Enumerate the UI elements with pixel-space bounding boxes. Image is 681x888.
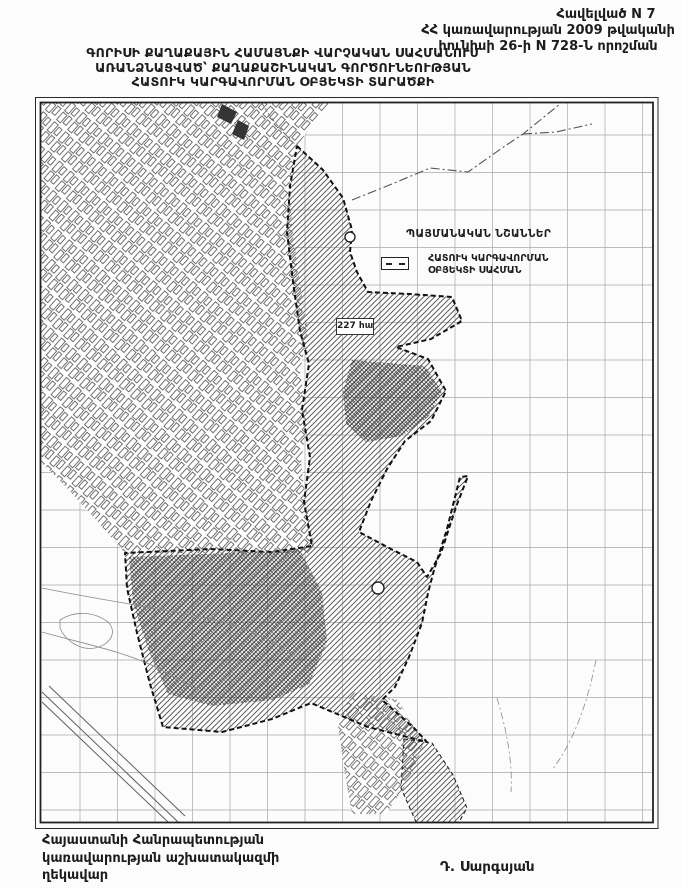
- boundary-marker-circle: [345, 232, 355, 242]
- signatory-line1: Հայաստանի Հանրապետության: [42, 832, 279, 850]
- signatory-line2: կառավարության աշխատակազմի: [42, 850, 279, 868]
- boundary-marker-circle: [372, 582, 384, 594]
- dashed-boundary-symbol: [381, 257, 409, 270]
- territory-area-label: 227 հա: [336, 318, 374, 335]
- signatory-block: Հայաստանի Հանրապետության կառավարության ա…: [42, 832, 279, 885]
- legend-entry-line2: ՕԲՅԵԿՏԻ ՍԱՀՄԱՆ: [428, 265, 548, 277]
- appendix-number: Հավելված N 7: [456, 7, 681, 23]
- title-line2: ԱՌԱՆՁՆԱՑՎԱԾ՝ ՔԱՂԱՔԱՇԻՆԱԿԱՆ ԳՈՐԾՈՒՆԵՈՒԹՅԱ…: [73, 61, 493, 76]
- page-title: ԳՈՐԻՍԻ ՔԱՂԱՔԱՅԻՆ ՀԱՄԱՅՆՔԻ ՎԱՐՉԱԿԱՆ ՍԱՀՄԱ…: [73, 46, 493, 90]
- legend-entry: ՀԱՏՈՒԿ ԿԱՐԳԱՎՈՐՄԱՆ ՕԲՅԵԿՏԻ ՍԱՀՄԱՆ: [428, 253, 548, 277]
- title-line3: ՀԱՏՈՒԿ ԿԱՐԳԱՎՈՐՄԱՆ ՕԲՅԵԿՏԻ ՏԱՐԱԾՔԻ: [73, 75, 493, 90]
- dashed-line-icon: [386, 263, 405, 265]
- appendix-decree-line1: ՀՀ կառավարության 2009 թվականի: [398, 23, 681, 39]
- hatch-wedge-south: [401, 739, 467, 822]
- legend-title: ՊԱՅՄԱՆԱԿԱՆ ՆՇԱՆՆԵՐ: [406, 228, 551, 240]
- admin-boundary-line: [352, 104, 592, 200]
- signatory-line3: ղեկավար: [42, 867, 279, 885]
- dense-hatch-east-blob: [343, 360, 442, 442]
- urban-blocks-area: [41, 103, 332, 553]
- signature-name: Դ. Սարգսյան: [440, 859, 535, 875]
- city-map: [0, 0, 681, 888]
- title-line1: ԳՈՐԻՍԻ ՔԱՂԱՔԱՅԻՆ ՀԱՄԱՅՆՔԻ ՎԱՐՉԱԿԱՆ ՍԱՀՄԱ…: [73, 46, 493, 61]
- legend-entry-line1: ՀԱՏՈՒԿ ԿԱՐԳԱՎՈՐՄԱՆ: [428, 253, 548, 265]
